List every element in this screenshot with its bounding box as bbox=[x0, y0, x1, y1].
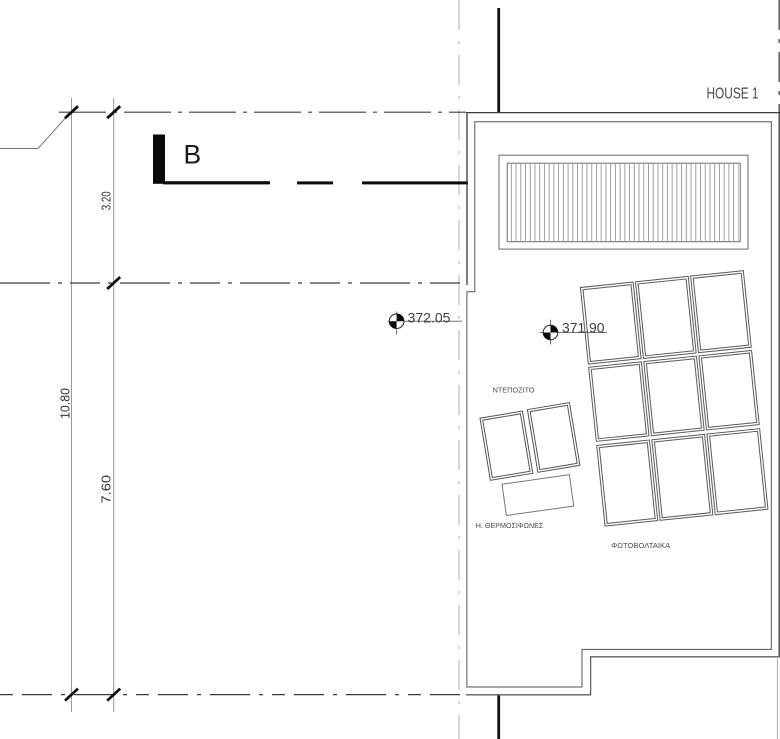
svg-text:Η. ΘΕΡΜΟΣΙΦΩΝΕΣ: Η. ΘΕΡΜΟΣΙΦΩΝΕΣ bbox=[476, 521, 544, 530]
svg-text:7.60: 7.60 bbox=[99, 475, 114, 504]
svg-text:371.90: 371.90 bbox=[562, 320, 605, 336]
svg-text:HOUSE 1: HOUSE 1 bbox=[707, 85, 759, 102]
svg-text:ΦΩΤΟΒΟΛΤΑΙΚΑ: ΦΩΤΟΒΟΛΤΑΙΚΑ bbox=[611, 541, 671, 550]
svg-text:ΝΤΕΠΟΖΙΤΟ: ΝΤΕΠΟΖΙΤΟ bbox=[493, 386, 535, 395]
svg-text:372.05: 372.05 bbox=[408, 309, 451, 325]
svg-text:3.20: 3.20 bbox=[99, 191, 114, 210]
svg-text:10.80: 10.80 bbox=[58, 388, 73, 419]
svg-text:B: B bbox=[184, 140, 202, 170]
